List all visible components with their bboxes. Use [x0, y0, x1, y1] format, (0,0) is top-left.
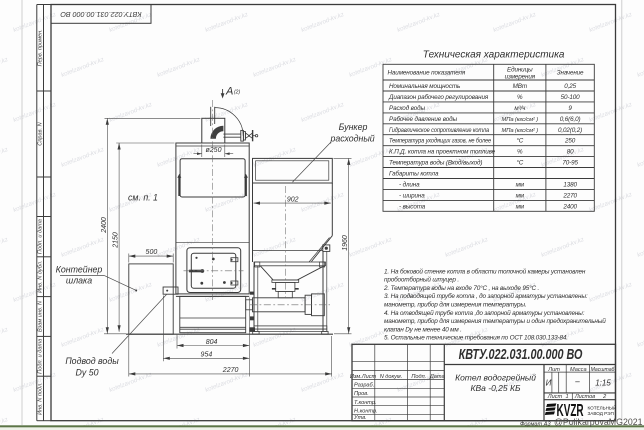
svg-text:N докум.: N докум. [380, 374, 403, 380]
svg-text:Габариты котла: Габариты котла [389, 170, 439, 178]
svg-text:1960: 1960 [342, 235, 349, 251]
svg-text:мм: мм [516, 182, 525, 189]
svg-text:(2): (2) [234, 90, 240, 96]
svg-text:0,6(6,0): 0,6(6,0) [560, 116, 581, 123]
svg-text:Бункер: Бункер [339, 122, 368, 132]
svg-text:Лист: Лист [547, 394, 563, 400]
svg-text:Значение: Значение [557, 70, 584, 77]
svg-text:Техническая характеристика: Техническая характеристика [423, 50, 565, 61]
svg-text:4. На отводящей трубе котла ,: 4. На отводящей трубе котла ,до запорной… [384, 309, 585, 317]
svg-text:КВа -0,25 КБ: КВа -0,25 КБ [470, 383, 521, 393]
svg-text:МПа (кгс/см² ): МПа (кгс/см² ) [502, 128, 539, 134]
svg-text:Изм.Лист: Изм.Лист [350, 374, 377, 380]
svg-text:804: 804 [206, 339, 218, 346]
svg-text:К.П.Д. котла на проектном топл: К.П.Д. котла на проектном топливе [389, 149, 496, 156]
svg-text:манометр, прибор для измерения: манометр, прибор для измерения температу… [384, 301, 526, 309]
svg-text:Инв. N подл.: Инв. N подл. [38, 382, 44, 415]
svg-text:клапан Dу не менее 40 мм .: клапан Dу не менее 40 мм . [384, 326, 462, 333]
svg-text:манометр, прибор для измерения: манометр, прибор для измерения температу… [384, 317, 606, 325]
svg-text:Единицы: Единицы [507, 66, 533, 74]
svg-text:Справ. N: Справ. N [38, 121, 44, 145]
svg-text:Т.контр.: Т.контр. [354, 400, 377, 406]
svg-text:2. Температура воды на входе: 2. Температура воды на входе 70°С , на в… [383, 284, 539, 292]
svg-text:–: – [574, 377, 580, 386]
svg-text:МПа (кгс/см² ): МПа (кгс/см² ) [502, 117, 539, 123]
svg-text:902: 902 [287, 197, 299, 204]
svg-text:1:15: 1:15 [595, 379, 611, 388]
svg-text:МВт: МВт [513, 83, 527, 90]
svg-text:Рабочее давление воды: Рабочее давление воды [389, 115, 458, 123]
svg-text:%: % [517, 94, 523, 101]
svg-text:2150: 2150 [113, 232, 120, 249]
svg-text:Температура воды (Вход/выход): Температура воды (Вход/выход) [389, 159, 482, 167]
svg-text:500: 500 [146, 249, 158, 256]
svg-text:шлака: шлака [66, 275, 92, 285]
svg-text:мм: мм [516, 192, 525, 199]
svg-text:Подп.: Подп. [411, 374, 426, 380]
svg-text:0,02(0,2): 0,02(0,2) [558, 127, 582, 134]
svg-text:И: И [546, 379, 552, 388]
svg-text:Подп. и дата: Подп. и дата [38, 219, 44, 254]
svg-text:3. На подводящей трубе котла: 3. На подводящей трубе котла , до запорн… [384, 292, 588, 300]
svg-text:70-95: 70-95 [562, 160, 578, 167]
svg-text:50-100: 50-100 [561, 94, 581, 101]
svg-text:954: 954 [201, 352, 213, 359]
svg-text:КВТУ.022.031.00.000 ВО: КВТУ.022.031.00.000 ВО [60, 10, 142, 19]
svg-text:- высота: - высота [399, 203, 426, 210]
svg-text:Лит: Лит [547, 367, 560, 373]
svg-text:2400: 2400 [101, 217, 108, 234]
svg-text:м³/ч: м³/ч [514, 105, 526, 112]
svg-text:Котел водогрейный: Котел водогрейный [455, 373, 536, 383]
svg-text:- длина: - длина [399, 181, 420, 189]
svg-text:Подп. и дата: Подп. и дата [38, 339, 44, 374]
svg-text:см. п. 1: см. п. 1 [128, 193, 158, 203]
svg-text:@PolikarpovaMG2021: @PolikarpovaMG2021 [554, 416, 643, 427]
svg-text:%: % [517, 149, 523, 156]
svg-text:°С: °С [516, 137, 523, 145]
svg-text:КВТУ.022.031.00.000 ВО: КВТУ.022.031.00.000 ВО [459, 345, 583, 362]
svg-text:А: А [225, 86, 233, 98]
svg-text:Разраб.: Разраб. [354, 383, 374, 389]
svg-text:ø250: ø250 [206, 147, 222, 154]
svg-text:Взам инв. N: Взам инв. N [38, 300, 44, 332]
svg-text:Утв.: Утв. [353, 415, 367, 421]
svg-text:расходный: расходный [329, 133, 374, 143]
svg-text:°С: °С [516, 159, 523, 167]
svg-text:- ширина: - ширина [399, 192, 425, 199]
svg-text:Н.контр.: Н.контр. [354, 409, 378, 415]
svg-text:Масса: Масса [570, 367, 587, 373]
svg-text:Формат А3: Формат А3 [520, 421, 551, 427]
svg-text:Расход воды: Расход воды [389, 104, 425, 112]
svg-text:Инв. N дубл.: Инв. N дубл. [38, 261, 44, 293]
svg-text:Наименование показателя: Наименование показателя [388, 70, 466, 77]
svg-text:Номинальная мощность: Номинальная мощность [389, 83, 460, 90]
svg-text:Диапазон рабочего регулировани: Диапазон рабочего регулирования [388, 93, 489, 101]
svg-text:Гидравлическое сопротивление к: Гидравлическое сопротивление котла [389, 126, 490, 134]
svg-text:2400: 2400 [562, 203, 577, 210]
svg-text:Контейнер: Контейнер [56, 264, 103, 274]
svg-text:250: 250 [564, 138, 576, 145]
svg-text:80: 80 [567, 149, 574, 156]
svg-text:5. Остальные технические треб: 5. Остальные технические требования по О… [384, 334, 568, 342]
svg-text:2270: 2270 [562, 192, 577, 199]
svg-text:1. На боковой стенке котла в: 1. На боковой стенке котла в области топ… [384, 267, 586, 275]
svg-text:КОТЕЛЬНЫЙ: КОТЕЛЬНЫЙ [588, 403, 617, 410]
svg-text:Температура уходящих газов, не: Температура уходящих газов, не более [389, 137, 492, 145]
svg-text:пробоотборный штуцер .: пробоотборный штуцер . [384, 276, 459, 284]
svg-text:Дата: Дата [429, 374, 445, 380]
svg-text:Перв. примен.: Перв. примен. [38, 29, 44, 66]
svg-text:Dу 50: Dу 50 [76, 368, 99, 378]
svg-text:2270: 2270 [222, 367, 239, 374]
svg-text:1380: 1380 [563, 182, 577, 189]
svg-text:мм: мм [516, 203, 525, 210]
svg-text:0,25: 0,25 [564, 83, 576, 90]
svg-text:Масштаб: Масштаб [591, 367, 616, 373]
svg-text:Пров.: Пров. [354, 391, 369, 397]
svg-text:1: 1 [565, 394, 568, 400]
svg-text:Листов: Листов [574, 394, 595, 400]
svg-text:измерения: измерения [505, 74, 536, 81]
svg-text:Подвод воды: Подвод воды [65, 356, 119, 366]
